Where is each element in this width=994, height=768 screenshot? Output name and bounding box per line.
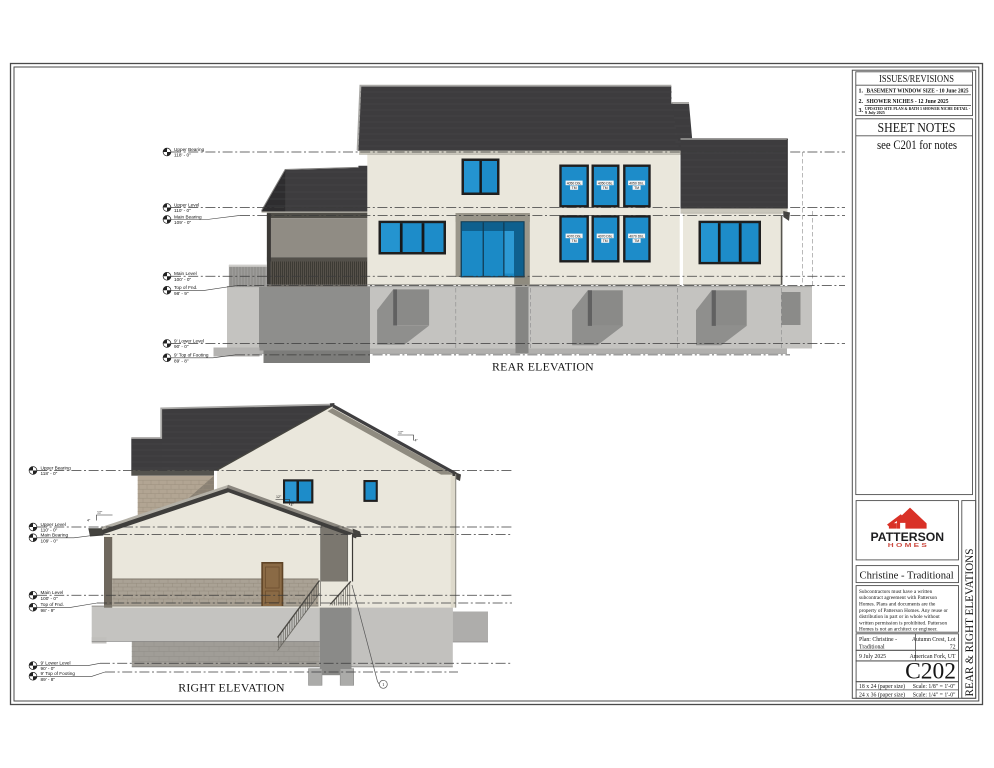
svg-text:4070 DbL: 4070 DbL (567, 234, 582, 238)
svg-text:Main Level: Main Level (41, 590, 64, 595)
svg-text:4050 DbL: 4050 DbL (598, 181, 613, 185)
svg-text:Main Bearing: Main Bearing (174, 214, 202, 219)
svg-text:REAR ELEVATION: REAR ELEVATION (492, 360, 594, 374)
svg-text:89' - 8": 89' - 8" (41, 677, 56, 682)
svg-text:PATTERSON: PATTERSON (871, 530, 945, 544)
svg-text:9' Top of Footing: 9' Top of Footing (174, 353, 209, 358)
svg-text:90' - 0": 90' - 0" (174, 344, 189, 349)
svg-text:see C201 for notes: see C201 for notes (877, 138, 957, 152)
svg-text:2.: 2. (859, 99, 864, 105)
svg-text:TM: TM (634, 239, 639, 243)
svg-text:24 x 36 (paper size): 24 x 36 (paper size) (859, 692, 905, 699)
svg-text:Traditional: Traditional (859, 644, 885, 650)
svg-text:4050 DbL: 4050 DbL (629, 181, 644, 185)
svg-text:Scale: 1/4" = 1'-0": Scale: 1/4" = 1'-0" (913, 693, 956, 699)
svg-text:109' - 0": 109' - 0" (41, 538, 58, 543)
svg-text:Homes. Plans and documents are: Homes. Plans and documents are the (859, 602, 936, 608)
svg-text:Upper Bearing: Upper Bearing (174, 147, 205, 152)
svg-text:Upper Bearing: Upper Bearing (41, 465, 72, 470)
svg-text:distribution in part or in who: distribution in part or in whole without (859, 614, 940, 620)
svg-text:89' - 8": 89' - 8" (174, 358, 189, 363)
svg-text:Top of Fnd.: Top of Fnd. (174, 285, 197, 290)
svg-text:110' - 0": 110' - 0" (174, 208, 191, 213)
svg-text:9 July 2025: 9 July 2025 (859, 654, 886, 660)
svg-text:Top of Fnd.: Top of Fnd. (41, 602, 64, 607)
svg-text:Subcontractors must have a wri: Subcontractors must have a written (859, 589, 933, 595)
svg-text:REAR & RIGHT ELEVATIONS: REAR & RIGHT ELEVATIONS (962, 549, 976, 697)
svg-text:written permission is prohibit: written permission is prohibited. Patter… (859, 620, 947, 626)
svg-text:Scale: 1/8" = 1'-0": Scale: 1/8" = 1'-0" (913, 684, 956, 690)
svg-text:C202: C202 (905, 659, 956, 685)
svg-text:100' - 0": 100' - 0" (174, 277, 191, 282)
svg-text:TM: TM (603, 239, 608, 243)
svg-text:100' - 0": 100' - 0" (41, 596, 58, 601)
svg-text:4070 DbL: 4070 DbL (598, 234, 613, 238)
svg-text:109' - 0": 109' - 0" (174, 220, 191, 225)
svg-text:SHEET NOTES: SHEET NOTES (878, 120, 956, 135)
svg-text:98' - 9": 98' - 9" (41, 608, 56, 613)
svg-text:Homes is not an architect or e: Homes is not an architect or engineer. (859, 627, 938, 633)
svg-text:9' Top of Footing: 9' Top of Footing (41, 671, 76, 676)
svg-text:Main Level: Main Level (174, 271, 197, 276)
svg-text:TM: TM (634, 186, 639, 190)
svg-text:118' - 0": 118' - 0" (174, 153, 191, 158)
svg-text:H O M E S: H O M E S (888, 543, 927, 549)
svg-text:9' Lower Level: 9' Lower Level (174, 338, 204, 343)
svg-text:Main Bearing: Main Bearing (41, 533, 69, 538)
svg-text:1.: 1. (859, 89, 864, 95)
svg-text:Plan: Christine -: Plan: Christine - (859, 637, 897, 643)
svg-text:Upper Level: Upper Level (41, 522, 66, 527)
svg-text:118' - 0": 118' - 0" (41, 471, 58, 476)
svg-text:TM: TM (572, 239, 577, 243)
svg-text:subcontract agreement with Pat: subcontract agreement with Patterson (859, 595, 937, 601)
svg-text:98' - 9": 98' - 9" (174, 291, 189, 296)
svg-text:9 July 2025: 9 July 2025 (865, 110, 885, 115)
svg-text:Upper Level: Upper Level (174, 202, 199, 207)
svg-text:4070 DbL: 4070 DbL (629, 234, 644, 238)
svg-text:Christine - Traditional: Christine - Traditional (860, 571, 954, 582)
svg-text:RIGHT ELEVATION: RIGHT ELEVATION (178, 680, 285, 694)
svg-text:Autumn Crest, Lot: Autumn Crest, Lot (912, 637, 956, 643)
svg-text:12": 12" (398, 431, 404, 435)
svg-text:TM: TM (572, 186, 577, 190)
svg-text:12": 12" (97, 511, 103, 515)
svg-text:property of Patterson Homes. A: property of Patterson Homes. Any reuse o… (859, 607, 948, 614)
svg-text:18 x 24 (paper size): 18 x 24 (paper size) (859, 683, 905, 690)
svg-text:9' Lower Level: 9' Lower Level (41, 660, 71, 665)
svg-text:TM: TM (603, 186, 608, 190)
svg-text:3.: 3. (859, 108, 864, 114)
svg-text:SHOWER NICHES - 12 June 2025: SHOWER NICHES - 12 June 2025 (867, 99, 949, 105)
svg-text:4050 DbL: 4050 DbL (567, 181, 582, 185)
svg-text:72: 72 (950, 644, 956, 650)
svg-text:BASEMENT WINDOW SIZE - 10 June: BASEMENT WINDOW SIZE - 10 June 2025 (867, 89, 969, 95)
svg-text:12": 12" (276, 495, 282, 499)
svg-text:ISSUES/REVISIONS: ISSUES/REVISIONS (879, 74, 954, 85)
